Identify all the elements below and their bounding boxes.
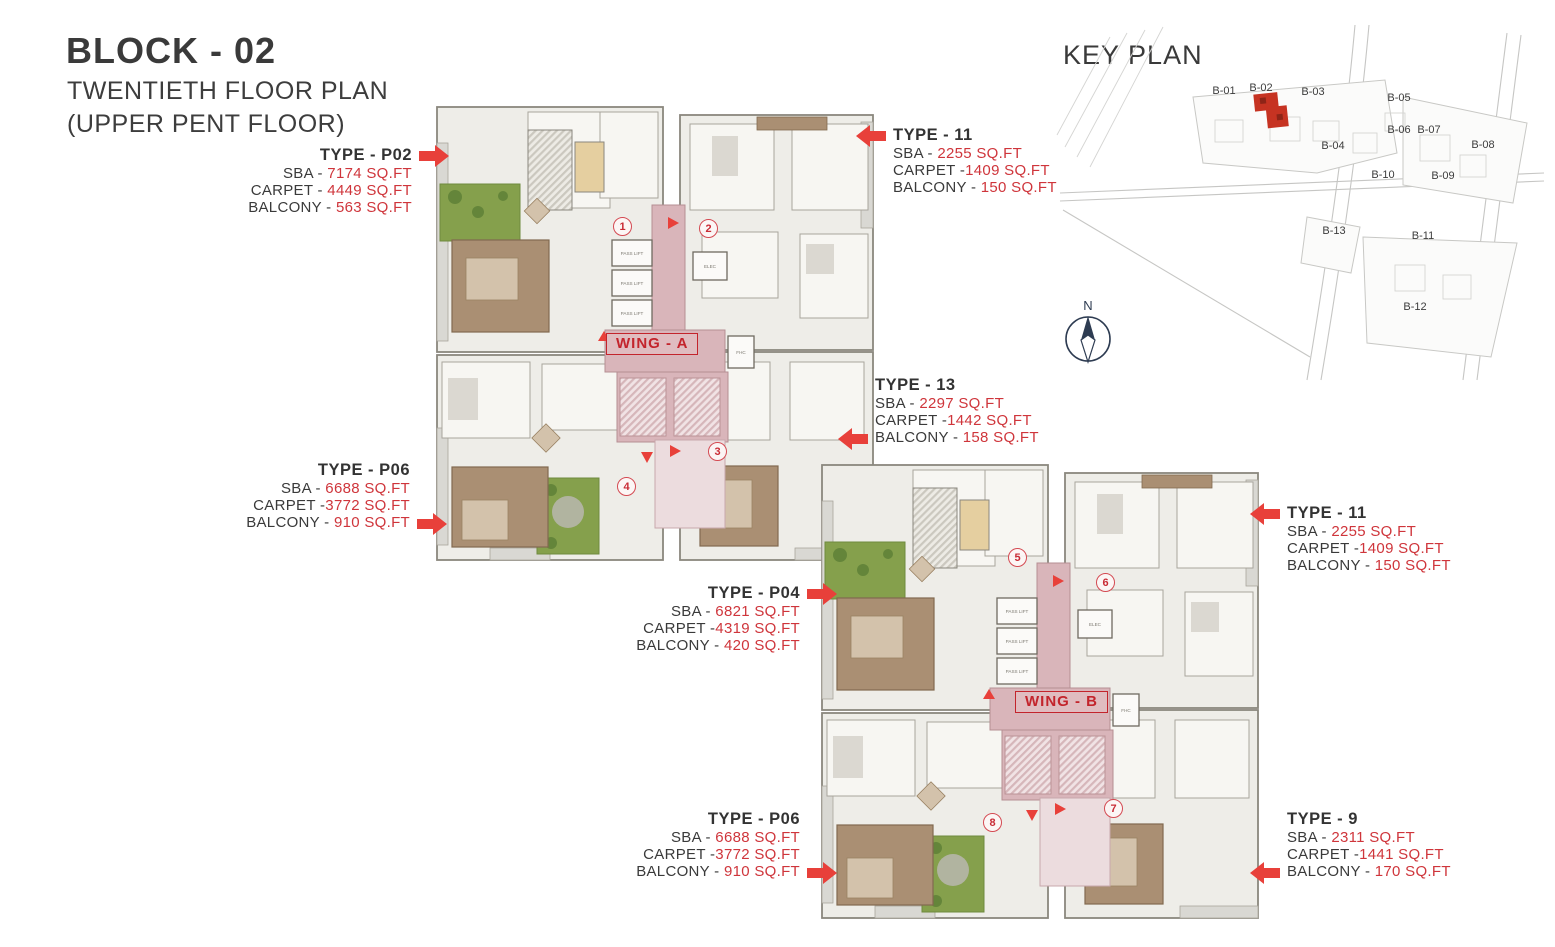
type-label-9: TYPE - 9 SBA - 2311 SQ.FT CARPET -1441 S… [1287, 810, 1497, 880]
sba-value: 2311 SQ.FT [1331, 829, 1415, 846]
block-label-b08: B-08 [1471, 139, 1494, 151]
sba-label: SBA - [671, 829, 715, 846]
carpet-value: 3772 SQ.FT [325, 497, 410, 514]
wing-b-badge: WING - B [1015, 691, 1108, 713]
arrow-left-icon [1250, 503, 1280, 525]
balcony-label: BALCONY - [636, 637, 724, 654]
page-subtitle-1: TWENTIETH FLOOR PLAN [67, 77, 388, 106]
block-label-b06: B-06 [1387, 124, 1410, 136]
unit-marker-2: 2 [699, 219, 718, 238]
arrow-left-icon [838, 428, 868, 450]
sba-label: SBA - [1287, 523, 1331, 540]
sba-label: SBA - [893, 145, 937, 162]
balcony-label: BALCONY - [1287, 863, 1375, 880]
type-name: TYPE - P04 [590, 584, 800, 603]
block-label-b07: B-07 [1417, 124, 1440, 136]
unit-marker-7: 7 [1104, 799, 1123, 818]
carpet-label: CARPET - [893, 162, 965, 179]
type-label-p06-left: TYPE - P06 SBA - 6688 SQ.FT CARPET -3772… [200, 461, 410, 531]
sba-label: SBA - [671, 603, 715, 620]
type-name: TYPE - 9 [1287, 810, 1497, 829]
page-title: BLOCK - 02 [66, 30, 276, 72]
carpet-value: 4449 SQ.FT [327, 182, 412, 199]
type-name: TYPE - P06 [200, 461, 410, 480]
balcony-label: BALCONY - [1287, 557, 1375, 574]
carpet-label: CARPET - [1287, 846, 1359, 863]
unit-marker-8: 8 [983, 813, 1002, 832]
block-label-b12: B-12 [1403, 301, 1426, 313]
carpet-value: 1442 SQ.FT [947, 412, 1032, 429]
sba-value: 2297 SQ.FT [919, 395, 1004, 412]
type-name: TYPE - 11 [893, 126, 1103, 145]
arrow-left-icon [1250, 862, 1280, 884]
balcony-value: 150 SQ.FT [1375, 557, 1451, 574]
block-label-b13: B-13 [1322, 225, 1345, 237]
type-label-11-right: TYPE - 11 SBA - 2255 SQ.FT CARPET -1409 … [1287, 504, 1497, 574]
balcony-value: 158 SQ.FT [963, 429, 1039, 446]
unit-marker-6: 6 [1096, 573, 1115, 592]
block-label-b01: B-01 [1212, 85, 1235, 97]
carpet-label: CARPET - [643, 846, 715, 863]
sba-value: 6688 SQ.FT [325, 480, 410, 497]
unit-marker-1: 1 [613, 217, 632, 236]
sba-value: 6688 SQ.FT [715, 829, 800, 846]
carpet-value: 4319 SQ.FT [715, 620, 800, 637]
block-label-b04: B-04 [1321, 140, 1344, 152]
sba-label: SBA - [1287, 829, 1331, 846]
type-name: TYPE - P02 [202, 146, 412, 165]
balcony-label: BALCONY - [246, 514, 334, 531]
sba-value: 6821 SQ.FT [715, 603, 800, 620]
block-label-b10: B-10 [1371, 169, 1394, 181]
arrow-right-icon [419, 145, 449, 167]
carpet-label: CARPET - [875, 412, 947, 429]
block-label-b02: B-02 [1249, 82, 1272, 94]
sba-label: SBA - [281, 480, 325, 497]
carpet-label: CARPET - [253, 497, 325, 514]
sba-value: 7174 SQ.FT [327, 165, 412, 182]
type-label-13: TYPE - 13 SBA - 2297 SQ.FT CARPET -1442 … [875, 376, 1085, 446]
carpet-value: 1409 SQ.FT [965, 162, 1050, 179]
balcony-label: BALCONY - [248, 199, 336, 216]
balcony-value: 420 SQ.FT [724, 637, 800, 654]
balcony-label: BALCONY - [893, 179, 981, 196]
carpet-label: CARPET - [1287, 540, 1359, 557]
unit-marker-4: 4 [617, 477, 636, 496]
arrow-right-icon [417, 513, 447, 535]
type-label-p04: TYPE - P04 SBA - 6821 SQ.FT CARPET -4319… [590, 584, 800, 654]
arrow-left-icon [856, 125, 886, 147]
carpet-label: CARPET - [251, 182, 328, 199]
page-subtitle-2: (UPPER PENT FLOOR) [67, 110, 345, 139]
block-label-b11: B-11 [1412, 230, 1434, 242]
arrow-right-icon [807, 862, 837, 884]
balcony-label: BALCONY - [636, 863, 724, 880]
carpet-value: 1441 SQ.FT [1359, 846, 1444, 863]
floor-plan-page: BLOCK - 02 TWENTIETH FLOOR PLAN (UPPER P… [0, 0, 1555, 947]
block-label-b03: B-03 [1301, 86, 1324, 98]
type-label-p06-bottom: TYPE - P06 SBA - 6688 SQ.FT CARPET -3772… [590, 810, 800, 880]
balcony-value: 910 SQ.FT [334, 514, 410, 531]
sba-label: SBA - [283, 165, 327, 182]
block-label-b05: B-05 [1387, 92, 1410, 104]
arrow-right-icon [807, 583, 837, 605]
sba-value: 2255 SQ.FT [937, 145, 1022, 162]
unit-marker-3: 3 [708, 442, 727, 461]
balcony-value: 910 SQ.FT [724, 863, 800, 880]
balcony-label: BALCONY - [875, 429, 963, 446]
carpet-value: 3772 SQ.FT [715, 846, 800, 863]
sba-label: SBA - [875, 395, 919, 412]
balcony-value: 170 SQ.FT [1375, 863, 1451, 880]
type-name: TYPE - P06 [590, 810, 800, 829]
sba-value: 2255 SQ.FT [1331, 523, 1416, 540]
wing-a-badge: WING - A [606, 333, 698, 355]
type-name: TYPE - 13 [875, 376, 1085, 395]
type-label-p02: TYPE - P02 SBA - 7174 SQ.FT CARPET - 444… [202, 146, 412, 216]
carpet-value: 1409 SQ.FT [1359, 540, 1444, 557]
type-name: TYPE - 11 [1287, 504, 1497, 523]
carpet-label: CARPET - [643, 620, 715, 637]
type-label-11-top: TYPE - 11 SBA - 2255 SQ.FT CARPET -1409 … [893, 126, 1103, 196]
floor-plan-drawing: PASS LIFT PASS LIFT PASS LIFT ELEC FHC [430, 100, 1270, 940]
balcony-value: 563 SQ.FT [336, 199, 412, 216]
balcony-value: 150 SQ.FT [981, 179, 1057, 196]
block-label-b09: B-09 [1431, 170, 1454, 182]
unit-marker-5: 5 [1008, 548, 1027, 567]
